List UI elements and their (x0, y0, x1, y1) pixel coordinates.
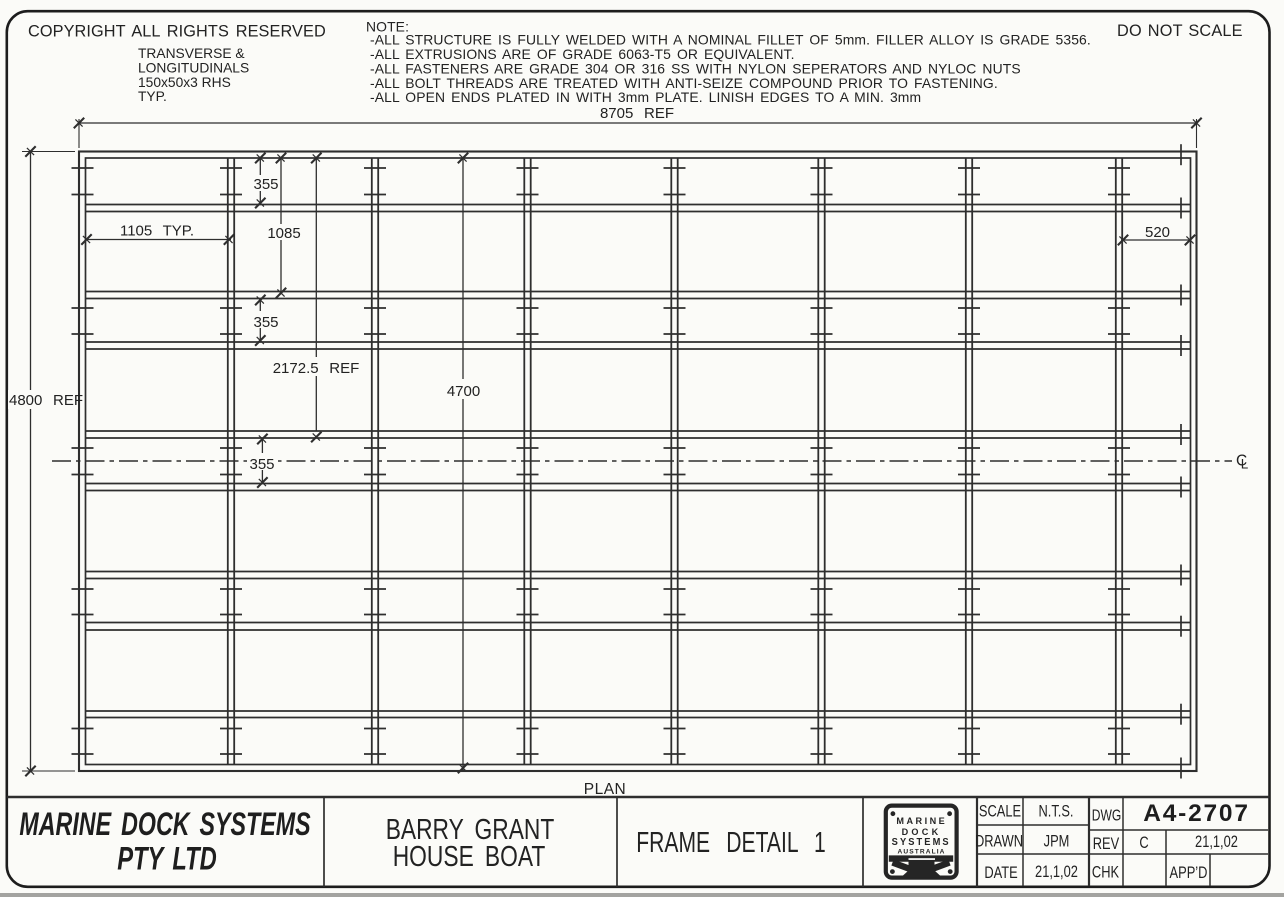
svg-text:4800 REF: 4800 REF (9, 392, 83, 409)
svg-text:DO NOT SCALE: DO NOT SCALE (1117, 22, 1243, 40)
svg-text:21,1,02: 21,1,02 (1035, 864, 1078, 882)
svg-text:PLAN: PLAN (584, 781, 627, 798)
svg-text:PTY LTD: PTY LTD (117, 841, 217, 878)
svg-text:-ALL OPEN ENDS PLATED IN WITH: -ALL OPEN ENDS PLATED IN WITH 3mm PLATE.… (370, 89, 921, 105)
svg-text:HOUSE BOAT: HOUSE BOAT (393, 842, 546, 873)
svg-text:COPYRIGHT ALL RIGHTS RESERVED: COPYRIGHT ALL RIGHTS RESERVED (28, 23, 326, 41)
svg-text:LONGITUDINALS: LONGITUDINALS (138, 61, 249, 76)
svg-text:N.T.S.: N.T.S. (1038, 803, 1073, 821)
svg-text:SCALE: SCALE (979, 803, 1021, 821)
svg-text:2172.5 REF: 2172.5 REF (273, 360, 360, 377)
svg-text:SYSTEMS: SYSTEMS (892, 837, 951, 848)
svg-text:355: 355 (249, 456, 274, 473)
svg-text:DOCK: DOCK (902, 827, 942, 837)
svg-text:TRANSVERSE &: TRANSVERSE & (138, 46, 245, 61)
svg-text:MARINE: MARINE (896, 816, 947, 826)
svg-text:MARINE DOCK SYSTEMS: MARINE DOCK SYSTEMS (19, 805, 310, 842)
svg-text:1105 TYP.: 1105 TYP. (120, 223, 194, 240)
svg-text:A4-2707: A4-2707 (1143, 800, 1250, 827)
svg-text:355: 355 (253, 176, 278, 193)
svg-text:AUSTRALIA: AUSTRALIA (898, 848, 946, 855)
svg-text:4700: 4700 (447, 383, 480, 400)
svg-text:JPM: JPM (1044, 833, 1070, 851)
svg-text:REV: REV (1093, 836, 1120, 854)
svg-text:C: C (1139, 835, 1149, 853)
svg-text:FRAME DETAIL 1: FRAME DETAIL 1 (636, 827, 825, 859)
svg-text:150x50x3 RHS: 150x50x3 RHS (138, 75, 231, 90)
svg-text:TYP.: TYP. (138, 89, 167, 104)
svg-text:355: 355 (253, 314, 278, 331)
svg-text:CHK: CHK (1092, 864, 1119, 882)
svg-text:520: 520 (1145, 224, 1170, 241)
svg-text:DRAWN: DRAWN (975, 833, 1023, 851)
svg-text:L: L (1241, 457, 1249, 472)
svg-text:APP’D: APP’D (1170, 865, 1208, 883)
svg-text:8705 REF: 8705 REF (600, 105, 674, 122)
svg-text:DATE: DATE (984, 865, 1017, 883)
svg-text:DWG: DWG (1092, 806, 1122, 824)
svg-text:21,1,02: 21,1,02 (1195, 834, 1238, 852)
svg-text:1085: 1085 (267, 225, 300, 242)
